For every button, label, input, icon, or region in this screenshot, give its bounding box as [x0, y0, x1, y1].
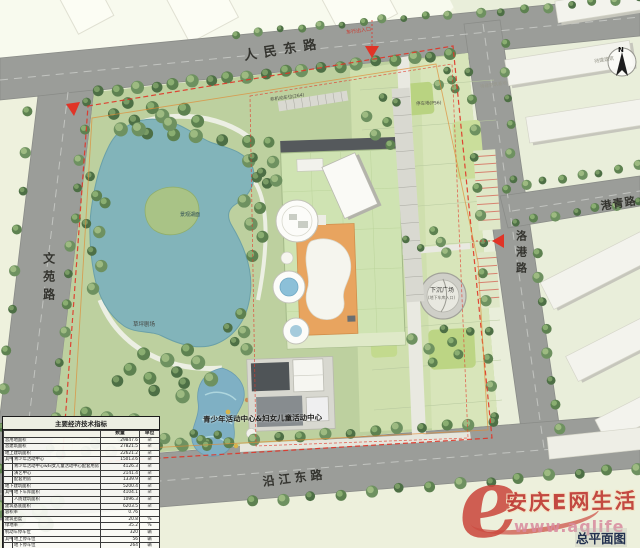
indicator-row: 配套用房1339.9㎡ [4, 477, 160, 484]
indicator-row: 绿地率35.2% [4, 523, 160, 530]
indicator-header-qty: 数量 [101, 431, 140, 438]
indicator-table-title: 主要经济技术指标 [3, 417, 159, 430]
lake-label: 景观湖面 [180, 213, 200, 218]
indicator-header-unit: 单位 [140, 431, 160, 438]
indicator-row: 演艺中心2141.4㎡ [4, 470, 160, 477]
sunken-plaza-sublabel: (地下车库入口) [428, 296, 455, 300]
indicator-grid: 数量 单位 总用地面积29847.6㎡总建筑面积27821.5㎡地上建筑面积22… [3, 430, 160, 548]
indicator-row: 地下建筑面积5200.4㎡ [4, 483, 160, 490]
road-label-luogang: 洛港路 [515, 230, 527, 278]
lawn-theater-label: 草坪剧场 [133, 323, 155, 329]
indicator-row: 地下停车位264辆 [4, 543, 160, 548]
plan-caption: 总平面图 [575, 528, 627, 547]
indicator-row: 人防建筑面积1096.3㎡ [4, 496, 160, 503]
lake-island [145, 187, 199, 235]
road-label-wenyuan: 文苑路 [42, 252, 55, 306]
indicator-row: 地上建筑面积22621.2㎡ [4, 450, 160, 457]
indicator-header-blank [4, 431, 101, 438]
indicator-row: 机动车停车位320辆 [4, 529, 160, 536]
watermark-brand: 安庆E网生活 [506, 485, 638, 517]
north-label: N [618, 47, 624, 54]
parking-label: 停车场(P56) [416, 102, 442, 108]
indicator-row: 建筑基底面积6203.5㎡ [4, 503, 160, 510]
indicator-row: 其中地上停车位56辆 [4, 536, 160, 543]
activity-center-buildings [244, 356, 336, 438]
indicator-table: 主要经济技术指标 数量 单位 总用地面积29847.6㎡总建筑面积27821.5… [2, 416, 160, 548]
indicator-row: 总用地面积29847.6㎡ [4, 437, 160, 444]
indicator-row: 建筑密度20.8% [4, 516, 160, 523]
indicator-row: 青少年活动中心&妇女儿童活动中心配套用房4126.3㎡ [4, 463, 160, 470]
indicator-row: 其中地下车库面积4104.1㎡ [4, 490, 160, 497]
master-plan-canvas: 人民东路 文苑路 港青路 洛港路 沿江东路 青少年活动中心&妇女儿童活动中心 下… [0, 0, 640, 548]
sunken-plaza-label: 下沉广场 [430, 288, 454, 294]
indicator-row: 总建筑面积27821.5㎡ [4, 444, 160, 451]
indicator-row: 容积率0.76 [4, 510, 160, 517]
indicator-row: 其中青少年活动中心15013.6㎡ [4, 457, 160, 464]
main-building [280, 137, 405, 349]
indicator-header-row: 数量 单位 [4, 431, 160, 438]
